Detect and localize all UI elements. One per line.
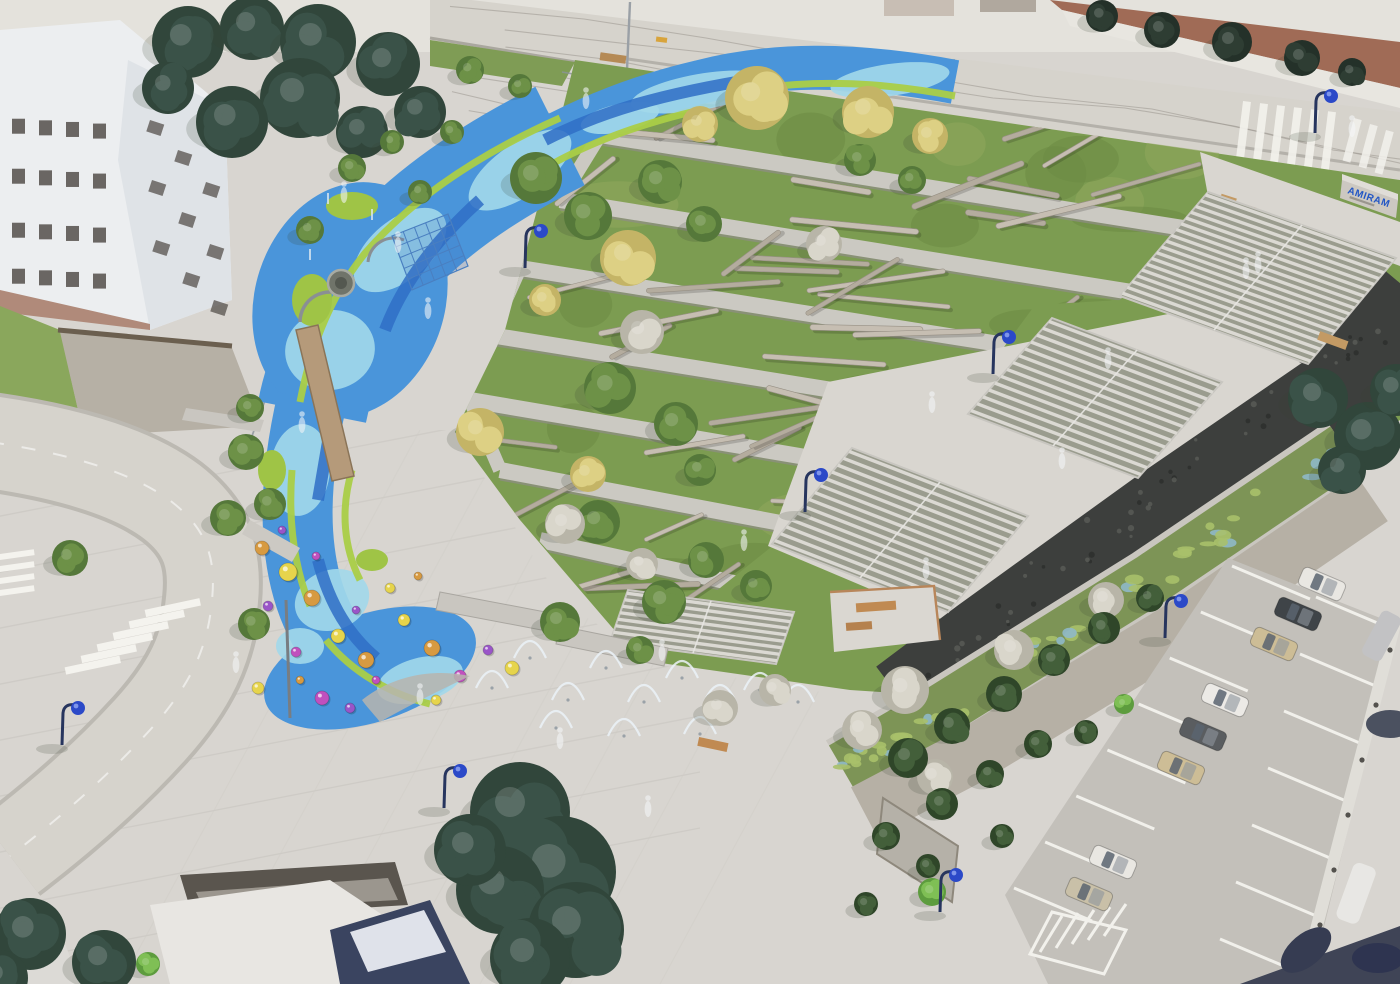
- tree-highlight: [1004, 640, 1016, 652]
- lamp-shadow: [779, 511, 811, 521]
- tree-highlight: [236, 12, 255, 31]
- window: [66, 172, 79, 187]
- jet-nozzle: [490, 686, 493, 689]
- gabion-stone: [1159, 479, 1164, 484]
- tree-highlight: [523, 165, 539, 181]
- ball-highlight: [293, 649, 296, 652]
- tree-highlight: [12, 916, 34, 938]
- play-ball: [291, 647, 301, 657]
- aerial-park-rendering: AMIRAM: [0, 0, 1400, 984]
- lamp-shadow: [1139, 637, 1171, 647]
- wetland-plant: [1062, 628, 1076, 638]
- wetland-plant: [1046, 636, 1058, 641]
- ball-highlight: [318, 694, 322, 698]
- ball-highlight: [374, 677, 376, 679]
- gabion-stone: [1138, 490, 1143, 495]
- person-body: [557, 733, 564, 749]
- tree-highlight: [170, 24, 192, 46]
- tree-highlight: [1096, 620, 1106, 630]
- person-head: [1243, 257, 1249, 263]
- person-head: [741, 529, 747, 535]
- tree-highlight: [767, 682, 777, 692]
- lamp-shadow: [418, 807, 450, 817]
- gabion-stone: [1007, 623, 1010, 626]
- ball-highlight: [283, 566, 288, 571]
- window: [93, 124, 106, 139]
- person-body: [741, 535, 748, 551]
- lamp-globe-highlight: [456, 767, 461, 772]
- lamp-globe-highlight: [1005, 333, 1010, 338]
- tree-highlight: [1345, 65, 1353, 73]
- wetland-plant: [877, 746, 887, 756]
- gabion-stone: [976, 635, 982, 641]
- gabion-stone: [1195, 457, 1199, 461]
- ball-highlight: [265, 603, 268, 606]
- window: [12, 223, 25, 238]
- lamp-globe-highlight: [1177, 597, 1182, 602]
- tree-highlight: [996, 830, 1003, 837]
- tree-highlight: [142, 958, 149, 965]
- tree-highlight: [1222, 32, 1234, 44]
- window: [93, 174, 106, 189]
- person-head: [425, 297, 431, 303]
- gabion-stone: [1084, 517, 1090, 523]
- person-body: [425, 303, 432, 319]
- person-head: [659, 639, 665, 645]
- tree-highlight: [446, 126, 453, 133]
- ghost-person: [659, 639, 666, 661]
- window: [12, 169, 25, 184]
- tree-highlight: [510, 938, 534, 962]
- ghost-person: [557, 727, 564, 749]
- tree-highlight: [893, 678, 907, 692]
- gabion-stone: [1261, 423, 1267, 429]
- ball-highlight: [416, 573, 418, 575]
- tree-highlight: [587, 511, 600, 524]
- tree-highlight: [372, 48, 391, 67]
- wetland-plant: [1200, 541, 1217, 546]
- ghost-person: [1243, 257, 1250, 279]
- tree-highlight: [386, 136, 393, 143]
- wetland-plant: [1227, 515, 1240, 521]
- gabion-stone: [1129, 535, 1132, 538]
- water-basin-center: [335, 277, 347, 289]
- lamp-globe: [453, 764, 467, 778]
- ghost-person: [299, 411, 306, 433]
- bollard: [1359, 757, 1364, 762]
- gabion-stone: [959, 641, 965, 647]
- ghost-person: [425, 297, 432, 319]
- tree-highlight: [468, 420, 482, 434]
- wetland-plant: [1205, 522, 1214, 530]
- wetland-plant: [1056, 637, 1065, 645]
- tree-highlight: [61, 549, 72, 560]
- tree-highlight: [665, 413, 678, 426]
- play-ball: [414, 572, 422, 580]
- tree-highlight: [852, 720, 864, 732]
- gabion-stone: [1266, 414, 1271, 419]
- ghost-person: [929, 391, 936, 413]
- tree-highlight: [1046, 652, 1056, 662]
- lamp-globe: [1002, 330, 1016, 344]
- tree-highlight: [219, 509, 230, 520]
- person-head: [1349, 115, 1355, 121]
- gabion-stone: [1194, 438, 1197, 441]
- gabion-stone: [1089, 552, 1095, 558]
- person-body: [341, 187, 348, 203]
- play-ball: [424, 640, 440, 656]
- ghost-person: [1105, 347, 1112, 369]
- ghost-person: [1255, 251, 1262, 273]
- tree-highlight: [155, 75, 171, 91]
- gabion-stone: [1008, 610, 1013, 615]
- ghost-person: [233, 651, 240, 673]
- person-head: [923, 557, 929, 563]
- play-ball: [263, 601, 273, 611]
- person-body: [645, 801, 652, 817]
- gabion-stone: [1085, 557, 1090, 562]
- lamp-shadow: [36, 744, 68, 754]
- gabion-stone: [1137, 500, 1142, 505]
- play-ball: [252, 682, 264, 694]
- tree-highlight: [1031, 737, 1039, 745]
- ball-highlight: [334, 632, 338, 636]
- person-head: [929, 391, 935, 397]
- jet-nozzle: [528, 656, 531, 659]
- lamp-globe: [949, 868, 963, 882]
- window: [39, 120, 52, 135]
- tree-highlight: [514, 80, 521, 87]
- gabion-stone: [925, 672, 931, 678]
- person-body: [1105, 353, 1112, 369]
- window: [39, 270, 52, 285]
- lamp-shadow: [914, 911, 946, 921]
- bollard: [1373, 702, 1378, 707]
- wetland-plant: [848, 754, 861, 764]
- bollard: [1345, 812, 1350, 817]
- tree-highlight: [345, 161, 353, 169]
- gabion-stone: [1334, 361, 1337, 364]
- tree-highlight: [495, 787, 525, 817]
- lamp-globe-highlight: [1327, 92, 1332, 97]
- tree-highlight: [1094, 8, 1104, 18]
- person-head: [299, 411, 305, 417]
- ghost-person: [1349, 115, 1356, 137]
- tree-highlight: [934, 796, 944, 806]
- tree-highlight: [922, 860, 929, 867]
- light-water: [276, 628, 324, 664]
- window: [93, 228, 106, 243]
- ball-highlight: [298, 677, 300, 679]
- tree-highlight: [925, 885, 933, 893]
- play-ball: [345, 703, 355, 713]
- tree-highlight: [879, 829, 887, 837]
- person-head: [233, 651, 239, 657]
- person-head: [1105, 347, 1111, 353]
- tree-highlight: [855, 99, 871, 115]
- window: [12, 269, 25, 284]
- gabion-stone: [1383, 340, 1388, 345]
- gabion-stone: [1042, 565, 1046, 569]
- gabion-stone: [954, 645, 960, 651]
- gabion-stone: [1031, 601, 1036, 606]
- person-head: [645, 795, 651, 801]
- gabion-stone: [1006, 620, 1009, 623]
- wetland-plant: [1215, 530, 1231, 541]
- wetland-plant: [869, 754, 879, 762]
- gabion-stone: [1117, 529, 1122, 534]
- gabion-stone: [1346, 357, 1351, 362]
- gabion-stone: [1323, 354, 1327, 358]
- ghost-person: [1059, 447, 1066, 469]
- gabion-stone: [1172, 477, 1177, 482]
- ghost-person: [645, 795, 652, 817]
- lamp-globe-highlight: [74, 704, 79, 709]
- ball-highlight: [433, 697, 436, 700]
- tree-highlight: [1293, 49, 1304, 60]
- lamp-globe-highlight: [952, 871, 957, 876]
- lamp-shadow: [499, 267, 531, 277]
- window: [66, 272, 79, 287]
- context-roof: [884, 0, 954, 16]
- ball-highlight: [258, 544, 262, 548]
- jet-nozzle: [554, 726, 557, 729]
- person-head: [341, 181, 347, 187]
- ball-highlight: [314, 553, 316, 555]
- wetland-plant: [833, 764, 851, 769]
- play-ball: [304, 590, 320, 606]
- play-ball: [255, 541, 269, 555]
- wetland-plant: [1250, 488, 1261, 496]
- tree-highlight: [214, 104, 236, 126]
- tree-highlight: [634, 556, 644, 566]
- gabion-stone: [1269, 390, 1273, 394]
- tree-highlight: [1351, 419, 1371, 439]
- jet-nozzle: [622, 734, 625, 737]
- ball-highlight: [401, 616, 404, 619]
- person-head: [1255, 251, 1261, 257]
- play-ball: [358, 652, 374, 668]
- gabion-stone: [1244, 432, 1248, 436]
- play-ball: [431, 695, 441, 705]
- tree-highlight: [926, 768, 937, 779]
- ball-highlight: [255, 684, 258, 687]
- gabion-stone: [1246, 419, 1251, 424]
- tree-highlight: [983, 767, 991, 775]
- tree-canopy-lobe: [774, 687, 791, 704]
- gabion-stone: [1359, 337, 1363, 341]
- jet-nozzle: [642, 700, 645, 703]
- tree-highlight: [860, 898, 867, 905]
- tree-highlight: [576, 204, 590, 218]
- gabion-stone: [1353, 340, 1358, 345]
- jet-nozzle: [796, 700, 799, 703]
- tree-highlight: [905, 173, 913, 181]
- tree-highlight: [649, 171, 662, 184]
- lamp-globe: [534, 224, 548, 238]
- tree-highlight: [748, 578, 758, 588]
- gabion-stone: [1354, 350, 1359, 355]
- bollard: [1317, 922, 1322, 927]
- scene-canvas: AMIRAM: [0, 0, 1400, 984]
- tree-highlight: [414, 186, 421, 193]
- play-ball: [398, 614, 410, 626]
- gabion-stone: [996, 603, 1002, 609]
- tree-highlight: [579, 465, 590, 476]
- tree-highlight: [1330, 458, 1344, 472]
- jet-nozzle: [698, 732, 701, 735]
- bollard: [1331, 867, 1336, 872]
- tree-highlight: [407, 99, 423, 115]
- person-head: [557, 727, 563, 733]
- play-ball: [315, 691, 329, 705]
- gabion-stone: [1251, 401, 1257, 407]
- ghost-person: [923, 557, 930, 579]
- tree-highlight: [691, 115, 702, 126]
- ghost-person: [741, 529, 748, 551]
- window: [93, 274, 106, 289]
- person-body: [417, 689, 424, 705]
- tree-canopy-lobe: [988, 772, 1003, 787]
- ball-highlight: [347, 705, 350, 708]
- tree-highlight: [550, 612, 562, 624]
- gabion-stone: [1168, 470, 1172, 474]
- play-ball: [372, 676, 380, 684]
- play-ball: [331, 629, 345, 643]
- tree-canopy-lobe: [639, 562, 656, 579]
- tree-highlight: [237, 443, 248, 454]
- tree-highlight: [631, 321, 644, 334]
- gabion-stone: [1188, 466, 1192, 470]
- tree-highlight: [262, 496, 272, 506]
- play-ball: [505, 661, 519, 675]
- tree-highlight: [1097, 591, 1108, 602]
- play-ball: [385, 583, 395, 593]
- ball-highlight: [387, 585, 390, 588]
- jet-nozzle: [680, 676, 683, 679]
- lamp-shadow: [1289, 132, 1321, 142]
- jet-nozzle: [604, 666, 607, 669]
- play-ball: [312, 552, 320, 560]
- window: [66, 122, 79, 137]
- person-body: [299, 417, 306, 433]
- ghost-person: [341, 181, 348, 203]
- window: [12, 119, 25, 134]
- person-body: [1349, 121, 1356, 137]
- grass-island: [326, 192, 378, 220]
- tree-highlight: [692, 462, 702, 472]
- tree-highlight: [1119, 699, 1125, 705]
- gabion-stone: [1375, 328, 1381, 334]
- wetland-plant: [1173, 550, 1192, 559]
- context-roof: [980, 0, 1036, 12]
- tree-highlight: [537, 292, 547, 302]
- wetland-plant: [1165, 575, 1179, 584]
- lamp-globe: [71, 701, 85, 715]
- tree-highlight: [243, 401, 251, 409]
- ghost-person: [395, 231, 402, 253]
- grass-island: [356, 549, 388, 571]
- lamp-globe-highlight: [817, 471, 822, 476]
- tree-highlight: [555, 514, 567, 526]
- person-head: [417, 683, 423, 689]
- ball-highlight: [427, 643, 431, 647]
- lamp-shadow: [967, 373, 999, 383]
- lamp-globe-highlight: [537, 227, 542, 232]
- ball-highlight: [361, 655, 365, 659]
- tree-highlight: [943, 717, 954, 728]
- tree-highlight: [246, 616, 256, 626]
- ghost-person: [417, 683, 424, 705]
- window: [39, 224, 52, 239]
- tree-highlight: [280, 78, 304, 102]
- tree-highlight: [349, 119, 365, 135]
- tree-highlight: [1303, 383, 1321, 401]
- gabion-stone: [1029, 561, 1033, 565]
- ball-highlight: [485, 647, 488, 650]
- play-ball: [483, 645, 493, 655]
- tree-highlight: [633, 643, 641, 651]
- lamp-globe: [1174, 594, 1188, 608]
- ball-highlight: [280, 527, 282, 529]
- tree-highlight: [1153, 21, 1164, 32]
- tree-highlight: [1143, 591, 1151, 599]
- tree-highlight: [741, 82, 760, 101]
- tree-highlight: [303, 223, 311, 231]
- tree-highlight: [88, 946, 107, 965]
- wetland-plant: [914, 718, 928, 724]
- bollard: [1387, 647, 1392, 652]
- tree-highlight: [711, 699, 722, 710]
- play-ball: [352, 606, 360, 614]
- play-ball: [279, 563, 297, 581]
- play-ball: [296, 676, 304, 684]
- tree-highlight: [898, 748, 910, 760]
- person-body: [395, 237, 402, 253]
- tree-highlight: [299, 23, 322, 46]
- gabion-stone: [1148, 502, 1153, 507]
- person-body: [659, 645, 666, 661]
- gabion-stone: [1060, 566, 1065, 571]
- tree-highlight: [653, 591, 666, 604]
- jet-nozzle: [566, 698, 569, 701]
- ball-highlight: [307, 593, 311, 597]
- ghost-person: [583, 87, 590, 109]
- wetland-plant: [1125, 575, 1144, 585]
- tree-highlight: [1080, 726, 1087, 733]
- play-ball: [278, 526, 286, 534]
- person-head: [395, 231, 401, 237]
- person-head: [583, 87, 589, 93]
- tree-highlight: [597, 375, 613, 391]
- tree-highlight: [815, 235, 826, 246]
- tree-highlight: [697, 551, 708, 562]
- gabion-stone: [1128, 525, 1134, 531]
- window: [66, 226, 79, 241]
- person-body: [929, 397, 936, 413]
- lamp-globe: [814, 468, 828, 482]
- person-body: [1243, 263, 1250, 279]
- tree-highlight: [452, 832, 474, 854]
- tree-highlight: [995, 685, 1006, 696]
- person-body: [923, 563, 930, 579]
- tree-highlight: [614, 244, 631, 261]
- ball-highlight: [354, 607, 356, 609]
- tree-highlight: [1383, 377, 1399, 393]
- gabion-stone: [1348, 335, 1352, 339]
- gabion-stone: [1346, 353, 1350, 357]
- lamp-globe: [1324, 89, 1338, 103]
